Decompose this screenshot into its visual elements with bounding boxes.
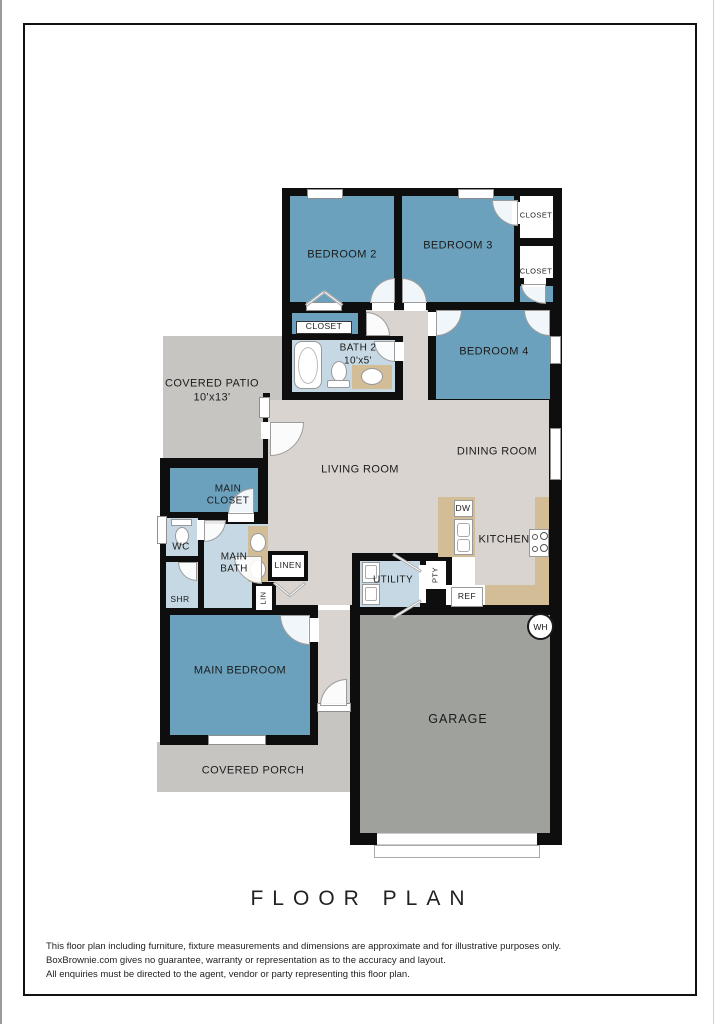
stove-burner-1 [532, 534, 538, 540]
bedroom2-label: BEDROOM 2 [307, 249, 377, 262]
disclaimer: This floor plan including furniture, fix… [46, 940, 686, 981]
covered-patio-label: COVERED PATIO [165, 378, 259, 391]
kitchen-floor-left [352, 497, 438, 553]
bath2-label: BATH 2 [340, 342, 377, 354]
kitchen-label: KITCHEN [478, 534, 529, 547]
stove-burner-2 [540, 532, 548, 540]
kitchen-sink-basin-2 [457, 539, 470, 552]
stove-burner-3 [532, 546, 538, 552]
hall-upper-floor2 [403, 336, 428, 400]
patio-slider-opening [261, 422, 270, 439]
bathtub-basin [298, 347, 318, 384]
bath2-dim-label: 10'x5' [344, 355, 372, 367]
hall-left-floor [268, 458, 352, 605]
refrigerator-label: REF [458, 592, 476, 602]
stove-burner-4 [540, 544, 548, 552]
main-closet-label: MAIN CLOSET [207, 484, 249, 507]
main-bath-sink-1 [250, 533, 266, 552]
closet-mid-right-label: CLOSET [520, 268, 552, 277]
covered-patio-area [163, 336, 282, 400]
closet-top-right-label: CLOSET [520, 212, 552, 221]
closet-bed2-label: CLOSET [306, 322, 342, 332]
door-gap-bath2 [394, 342, 404, 361]
door-gap-bedroom3 [404, 302, 426, 311]
window-wc [157, 516, 167, 544]
garage-door-panel [374, 845, 540, 858]
pantry-label: PTY [432, 567, 441, 583]
lin-label: LIN [260, 591, 269, 604]
scan-edge-left [0, 0, 2, 1024]
window-bedroom2 [307, 189, 343, 199]
kitchen-counter-bottom [485, 585, 549, 605]
window-bedroom4 [550, 336, 561, 364]
toilet-bath2-tank [327, 380, 350, 388]
floor-plan-page: WH BEDROOM 2 BEDROOM 3 CLOSET CLO [0, 0, 724, 1024]
living-room-label: LIVING ROOM [321, 464, 399, 477]
window-living [259, 397, 270, 418]
dryer-door [365, 587, 377, 601]
disclaimer-line-2: BoxBrownie.com gives no guarantee, warra… [46, 954, 686, 968]
toilet-wc-tank [171, 519, 192, 526]
main-bath-label: MAIN BATH [220, 552, 248, 575]
bedroom4-label: BEDROOM 4 [459, 346, 529, 359]
covered-porch-label: COVERED PORCH [202, 765, 304, 778]
utility-label: UTILITY [373, 574, 413, 586]
covered-patio-area-lower [163, 400, 263, 458]
scan-edge-right [713, 0, 714, 1024]
dishwasher-label: DW [456, 504, 471, 514]
disclaimer-line-3: All enquiries must be directed to the ag… [46, 968, 686, 982]
window-bedroom3 [458, 189, 494, 199]
door-gap-bedroom2 [372, 302, 394, 311]
wc-label: WC [172, 541, 189, 553]
window-dining [550, 428, 561, 480]
water-heater: WH [527, 613, 554, 640]
covered-porch-entry [318, 712, 350, 746]
water-heater-label: WH [533, 622, 547, 632]
bedroom3-label: BEDROOM 3 [423, 240, 493, 253]
kitchen-sink-basin-1 [457, 523, 470, 537]
garage-label: GARAGE [428, 712, 488, 726]
page-title: FLOOR PLAN [250, 887, 473, 911]
linen-label: LINEN [274, 561, 301, 571]
main-bedroom-label: MAIN BEDROOM [194, 665, 286, 678]
shower-label: SHR [170, 595, 189, 605]
garage-door-band [377, 833, 537, 845]
window-main-bedroom [208, 735, 266, 745]
patio-dim-label: 10'x13' [194, 392, 231, 405]
disclaimer-line-1: This floor plan including furniture, fix… [46, 940, 686, 954]
bath2-sink [361, 368, 383, 385]
dining-room-label: DINING ROOM [457, 446, 537, 459]
